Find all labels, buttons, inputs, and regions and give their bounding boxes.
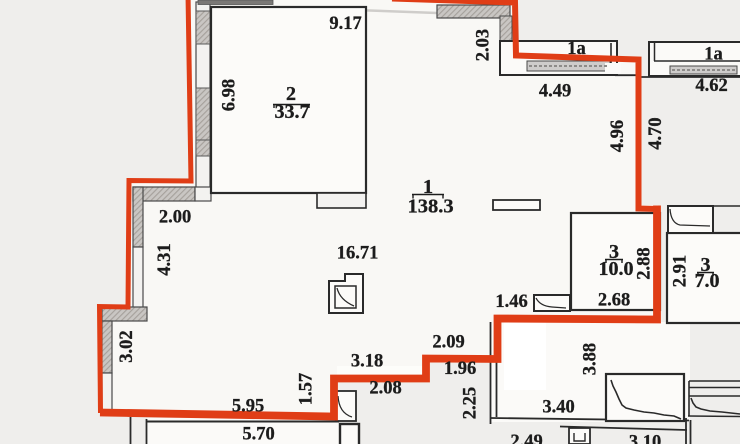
svg-text:4.62: 4.62 [695,76,727,96]
svg-text:2.88: 2.88 [635,247,655,279]
svg-text:6.98: 6.98 [220,79,240,111]
svg-text:2.09: 2.09 [432,333,464,353]
svg-text:10.0: 10.0 [599,258,634,280]
svg-text:5.70: 5.70 [242,425,274,444]
svg-text:4.96: 4.96 [608,120,628,152]
svg-text:2.00: 2.00 [159,208,191,228]
svg-text:138.3: 138.3 [407,196,453,218]
svg-text:4.49: 4.49 [539,82,571,102]
svg-text:3.10: 3.10 [629,433,661,444]
svg-text:5.95: 5.95 [232,397,264,417]
svg-text:1.46: 1.46 [495,292,527,312]
svg-text:2.03: 2.03 [474,29,494,61]
svg-text:1a: 1a [567,39,586,59]
svg-text:3.88: 3.88 [581,343,601,375]
svg-text:2.25: 2.25 [461,387,481,419]
svg-text:4.70: 4.70 [646,117,666,149]
svg-text:1.96: 1.96 [444,359,476,379]
svg-text:9.17: 9.17 [329,14,361,34]
svg-text:3.40: 3.40 [542,398,574,418]
svg-text:2.49: 2.49 [510,432,542,444]
svg-text:4.31: 4.31 [155,243,175,275]
svg-text:2.08: 2.08 [369,379,401,399]
svg-text:3.02: 3.02 [117,330,137,362]
svg-text:2.68: 2.68 [598,291,630,311]
svg-text:1a: 1a [704,45,723,65]
svg-text:2.91: 2.91 [670,255,690,287]
svg-text:16.71: 16.71 [337,244,379,264]
svg-text:3.18: 3.18 [351,352,383,372]
svg-text:1.57: 1.57 [297,373,317,405]
